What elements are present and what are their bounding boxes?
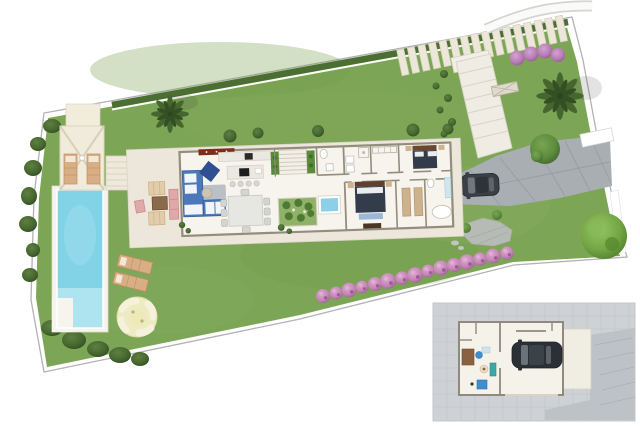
toilet <box>427 179 434 188</box>
entry-planter <box>307 150 316 173</box>
garage-apron <box>563 329 591 389</box>
coffee-table <box>202 188 212 198</box>
washbasin <box>346 165 354 172</box>
teal-bench <box>490 363 496 376</box>
pool-area <box>52 186 108 332</box>
terrace-bench <box>169 189 179 219</box>
bathtub <box>432 205 451 219</box>
office-chair <box>476 352 483 359</box>
cooktop <box>239 168 249 176</box>
bed-headboard <box>412 145 436 151</box>
inner-courtyard <box>278 197 317 226</box>
garage-car <box>512 340 562 371</box>
parked-car-driveway <box>460 171 499 200</box>
dresser <box>363 223 381 229</box>
gazebo-roof-finial <box>80 156 85 161</box>
terrace-armchair <box>149 212 165 226</box>
palm-tree-east <box>536 72 584 120</box>
fire-pit-lounge <box>117 297 157 337</box>
office-desk <box>462 349 474 365</box>
bath-cabinet <box>445 178 452 198</box>
kitchen-sink <box>255 168 261 173</box>
bed-bench <box>359 213 383 220</box>
site-plan-canvas <box>0 0 640 429</box>
side-table <box>482 347 490 353</box>
floor-lamp <box>470 382 473 385</box>
wardrobe <box>414 188 423 216</box>
driveway-bush <box>530 134 560 164</box>
terrace-rug <box>152 196 167 210</box>
washbasin <box>346 156 354 163</box>
main-house <box>126 138 463 248</box>
nightstand <box>405 146 411 151</box>
nightstand <box>348 182 354 188</box>
gazebo <box>60 104 104 190</box>
oven <box>245 153 253 160</box>
site-plan-svg <box>0 0 640 429</box>
nightstand <box>438 145 444 150</box>
entry-steps <box>271 149 316 175</box>
lounge-chair <box>477 380 487 389</box>
terrace-side-chair <box>134 200 145 213</box>
toilet <box>320 149 328 158</box>
nightstand <box>386 181 392 187</box>
washbasin <box>326 164 333 171</box>
dining-table <box>228 195 263 226</box>
jacuzzi <box>318 195 341 214</box>
corner-tree <box>581 213 627 259</box>
palm-tree-west <box>151 95 189 133</box>
bed-headboard <box>355 181 385 187</box>
basement-inset <box>433 303 635 421</box>
gazebo-walk <box>66 104 100 128</box>
patio-bush <box>492 210 502 220</box>
wardrobe <box>402 188 411 216</box>
pool-corner-deck <box>52 298 73 332</box>
terrace-armchair <box>149 182 165 196</box>
